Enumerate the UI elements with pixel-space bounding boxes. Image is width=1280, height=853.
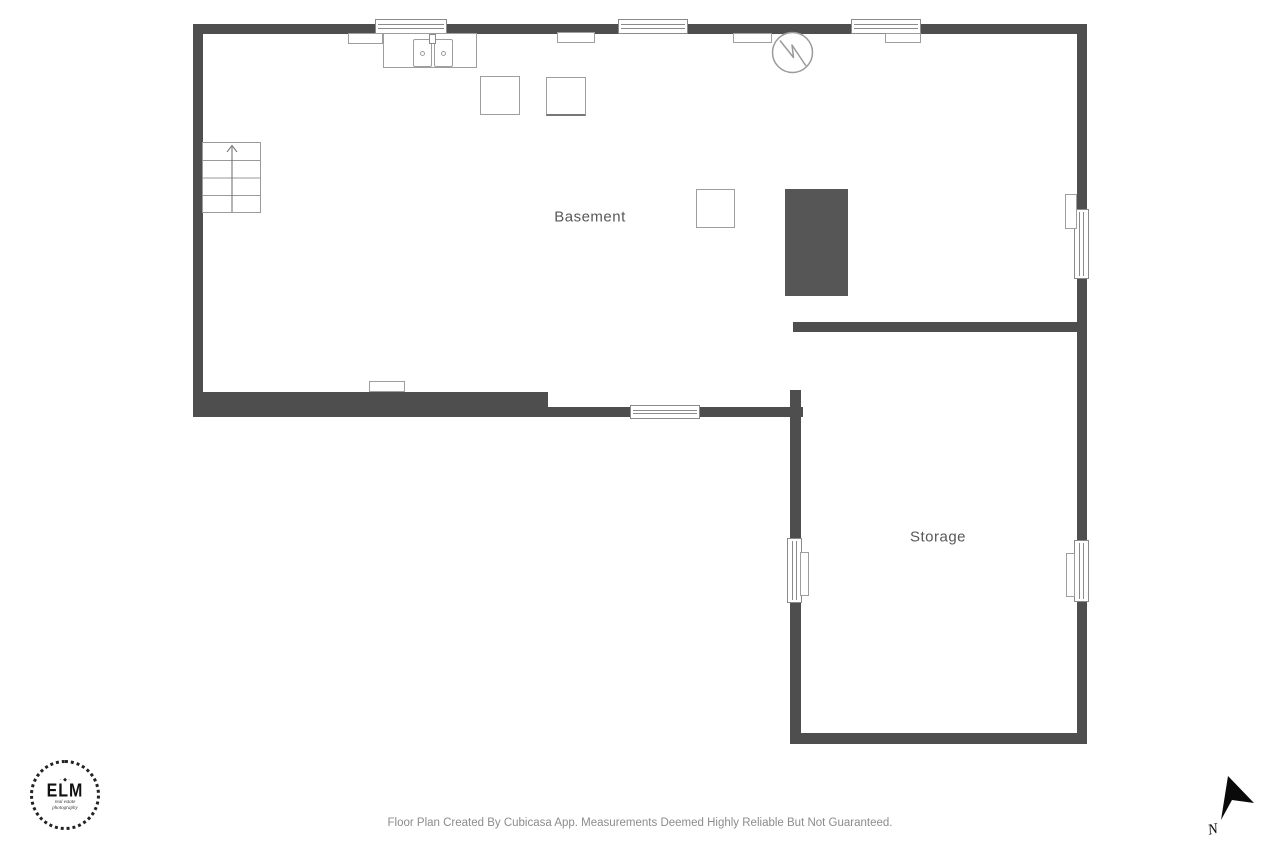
counter-segment-far-right	[885, 33, 921, 43]
counter-segment-left	[348, 33, 383, 44]
stairs-icon	[202, 142, 261, 213]
wall-left	[193, 24, 203, 417]
sink-faucet-icon	[429, 34, 436, 44]
wall-bottom-thick	[193, 392, 548, 417]
logo-title: ELM	[47, 782, 84, 802]
window-glass	[792, 541, 797, 600]
window-sill-storage-right	[1066, 553, 1075, 597]
window-bottom	[630, 405, 700, 419]
window-glass	[854, 24, 918, 29]
footer-disclaimer: Floor Plan Created By Cubicasa App. Meas…	[0, 817, 1280, 829]
wall-storage-bottom	[790, 733, 1087, 744]
wall-storage-left-upper	[790, 390, 801, 538]
north-arrow-compass: N	[1200, 770, 1262, 840]
north-label: N	[1205, 821, 1220, 839]
wall-storage-top	[793, 322, 1087, 332]
appliance-square-1	[480, 76, 520, 115]
window-glass	[378, 24, 444, 29]
north-arrow-icon: N	[1200, 770, 1262, 840]
sink-drain-icon	[420, 51, 425, 56]
window-glass	[1079, 212, 1084, 276]
elm-logo-badge: · ◆ · ELM real estate photography	[30, 760, 100, 830]
water-heater-icon	[771, 31, 814, 74]
counter-segment-right	[733, 33, 772, 43]
window-top-1	[375, 19, 447, 34]
mechanical-block	[785, 189, 848, 296]
window-glass	[621, 24, 685, 29]
wall-storage-left-lower	[790, 603, 801, 744]
fixture-square-center	[696, 189, 735, 228]
room-label-basement: Basement	[554, 209, 626, 226]
kitchen-sink-counter	[383, 33, 477, 68]
window-glass	[1079, 543, 1084, 599]
window-sill-basement-right	[1065, 194, 1077, 229]
appliance-square-2	[546, 77, 586, 116]
window-top-3	[851, 19, 921, 34]
crawlspace-vent	[369, 381, 405, 392]
room-label-storage: Storage	[910, 529, 966, 546]
wall-right-lower	[1077, 602, 1087, 744]
floor-plan: Basement Storage	[0, 0, 1280, 853]
wall-right-middle	[1077, 279, 1087, 540]
window-storage-right	[1074, 540, 1089, 602]
window-sill-storage-left	[800, 552, 809, 596]
window-top-2	[618, 19, 688, 34]
logo-subtitle-line2: photography	[52, 806, 78, 812]
counter-segment-mid	[557, 32, 595, 43]
wall-right-upper	[1077, 24, 1087, 209]
window-glass	[633, 410, 697, 414]
sink-drain-icon	[441, 51, 446, 56]
